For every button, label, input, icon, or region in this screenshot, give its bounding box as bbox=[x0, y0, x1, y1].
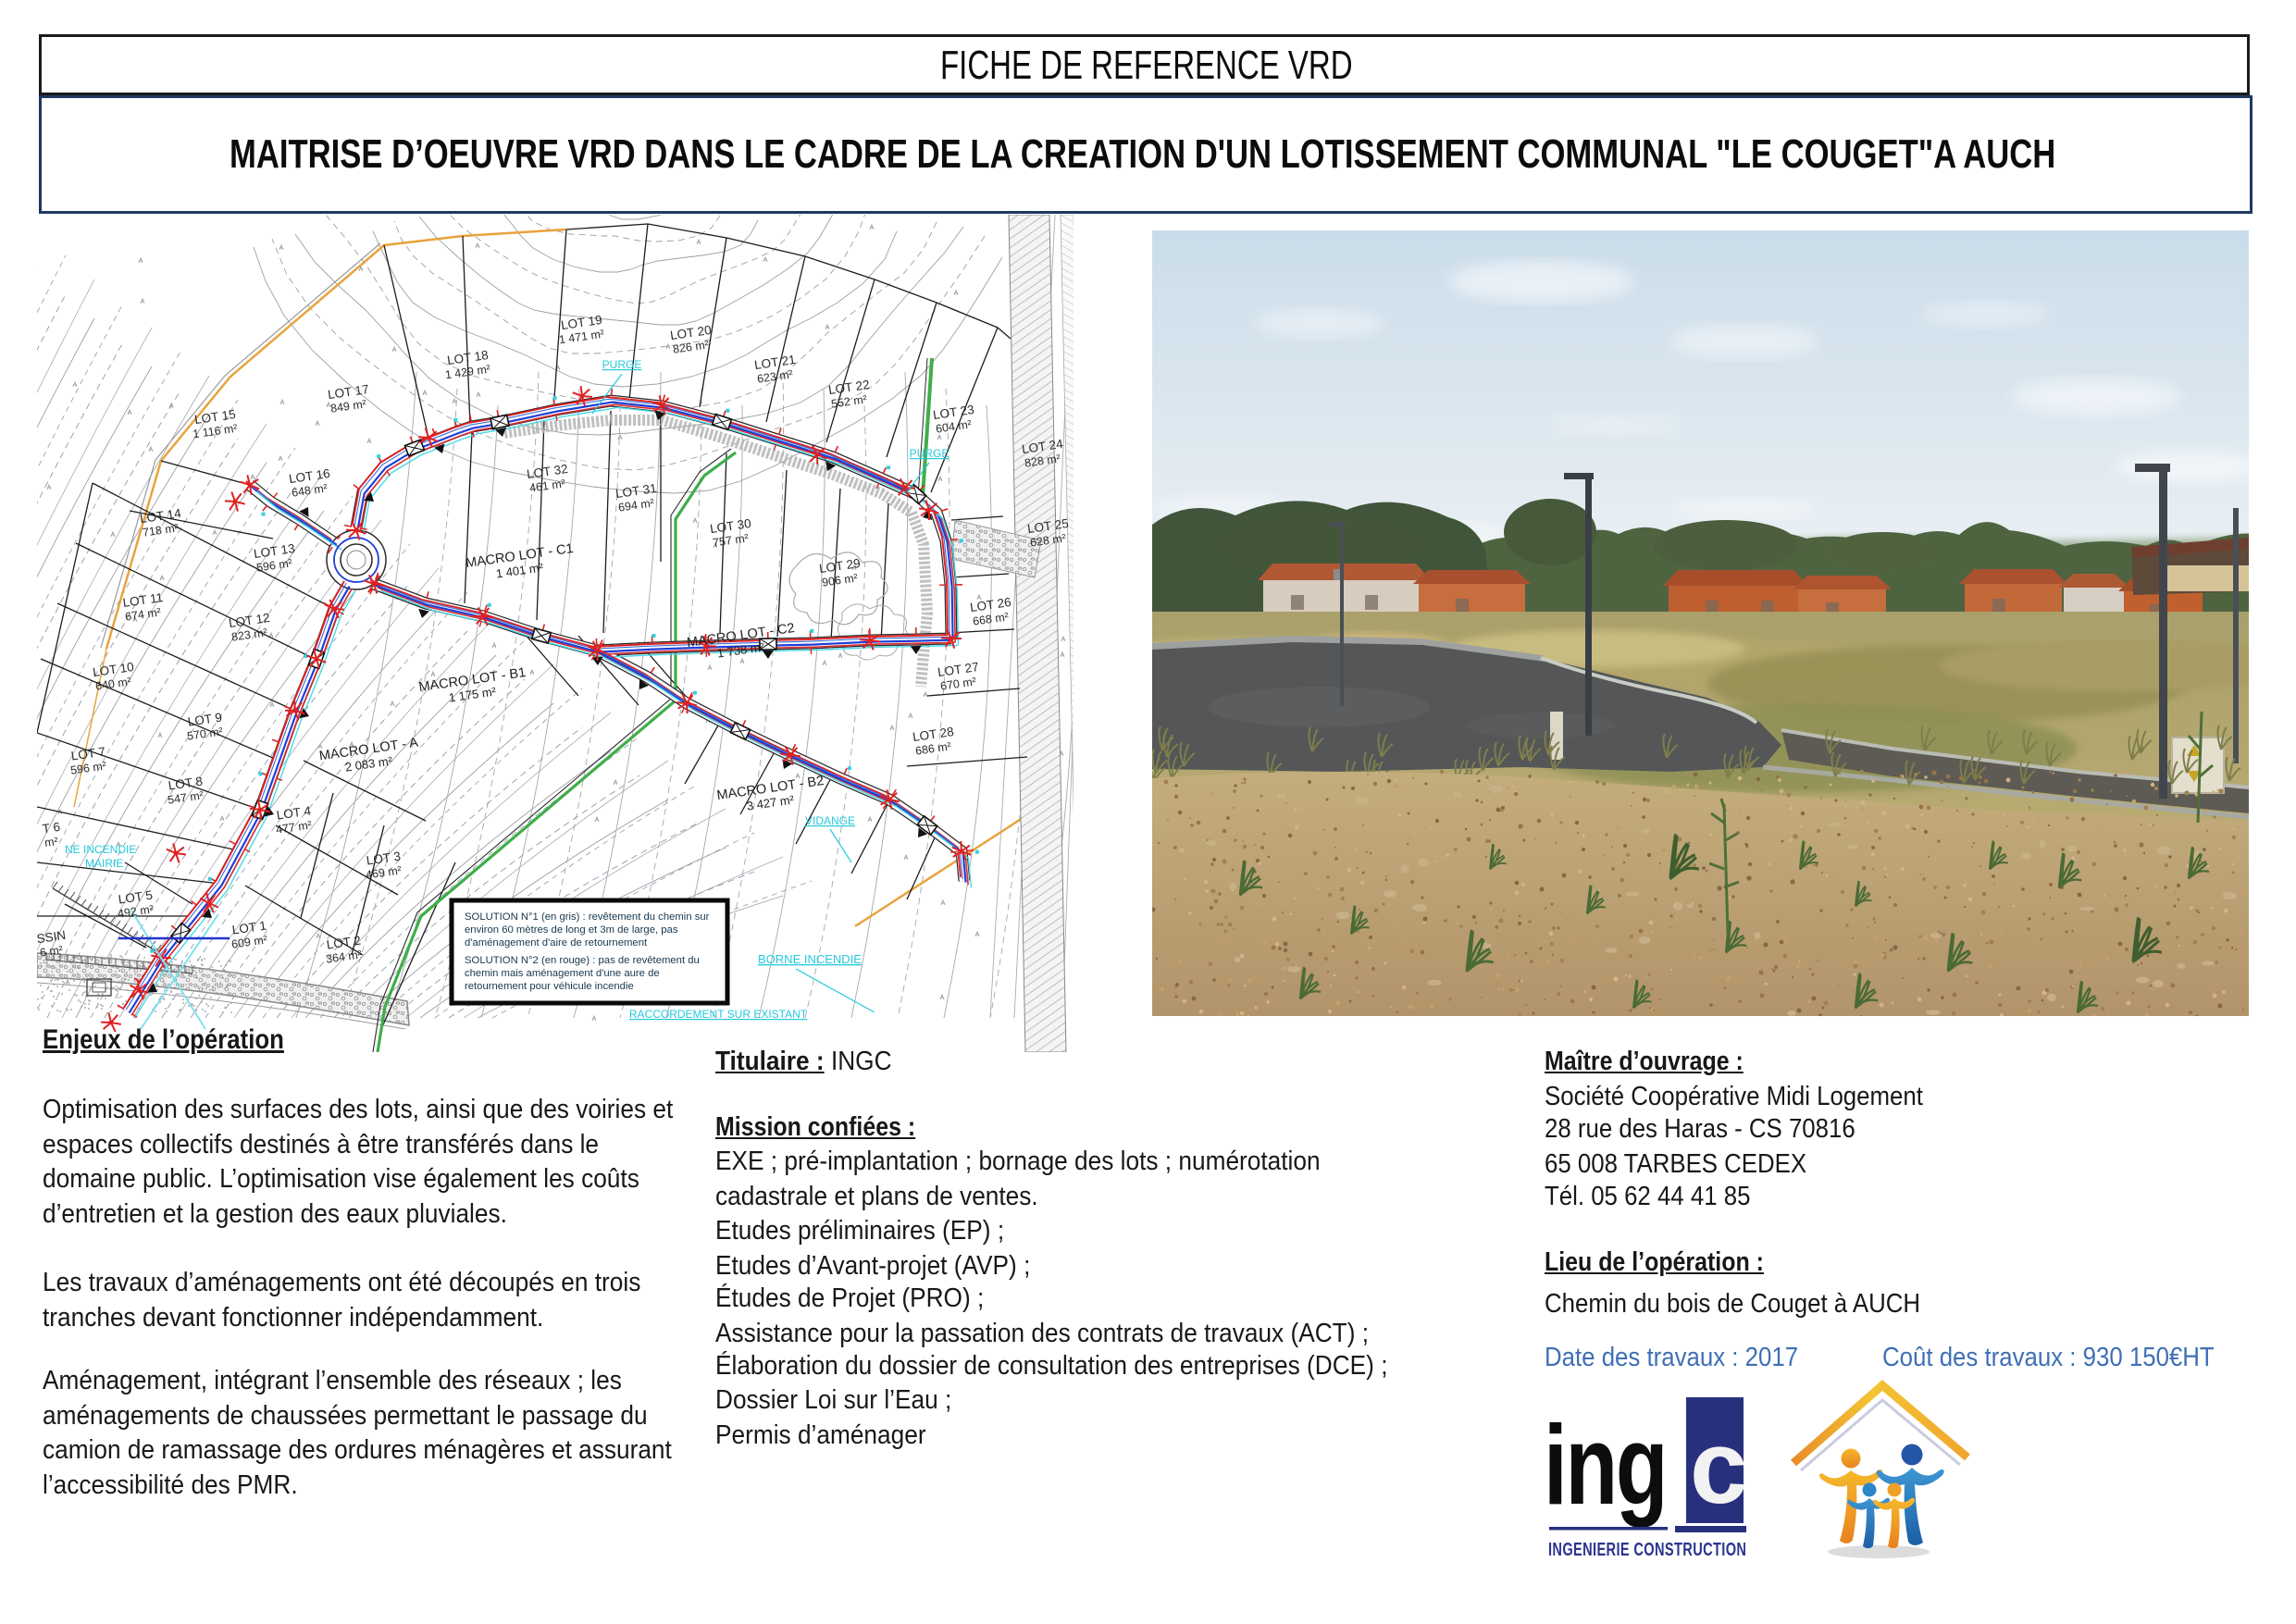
svg-text:BORNE INCENDIE: BORNE INCENDIE bbox=[758, 952, 862, 966]
svg-text:INGENIERIE CONSTRUCTION: INGENIERIE CONSTRUCTION bbox=[1548, 1539, 1746, 1560]
svg-text:PURGE: PURGE bbox=[602, 358, 642, 371]
svg-text:m²: m² bbox=[43, 835, 58, 849]
svg-text:ing: ing bbox=[1544, 1402, 1666, 1528]
svg-text:SSIN: SSIN bbox=[37, 928, 67, 946]
svg-text:PURGE: PURGE bbox=[910, 447, 949, 460]
svg-text:c: c bbox=[1690, 1409, 1747, 1525]
svg-text:RACCORDEMENT SUR EXISTANT: RACCORDEMENT SUR EXISTANT bbox=[629, 1008, 808, 1021]
svg-text:T 6: T 6 bbox=[42, 820, 61, 837]
svg-text:VIDANGE: VIDANGE bbox=[805, 814, 855, 827]
svg-text:NE INCENDIE: NE INCENDIE bbox=[65, 843, 136, 856]
svg-text:MAIRIE: MAIRIE bbox=[85, 857, 123, 870]
